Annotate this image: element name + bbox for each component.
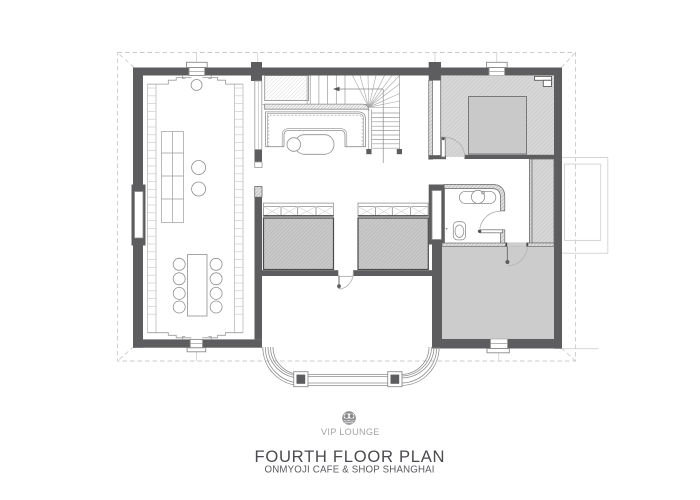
- svg-text:ONMYOJI CAFE & SHOP SHANGHAI: ONMYOJI CAFE & SHOP SHANGHAI: [265, 465, 435, 476]
- svg-text:FOURTH FLOOR PLAN: FOURTH FLOOR PLAN: [255, 447, 445, 466]
- svg-text:VIP LOUNGE: VIP LOUNGE: [321, 427, 380, 437]
